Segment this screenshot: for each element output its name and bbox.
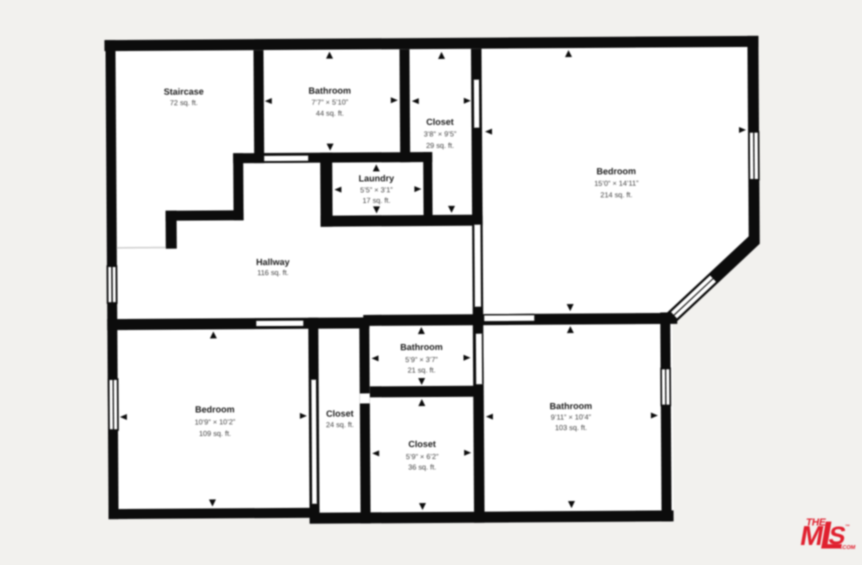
svg-text:Hallway: Hallway — [256, 257, 290, 267]
svg-text:10’9” × 10’2”: 10’9” × 10’2” — [195, 417, 236, 426]
svg-text:15’0” × 14’11”: 15’0” × 14’11” — [594, 179, 639, 188]
svg-text:103 sq. ft.: 103 sq. ft. — [555, 423, 587, 432]
svg-text:21 sq. ft.: 21 sq. ft. — [408, 365, 436, 374]
svg-text:109 sq. ft.: 109 sq. ft. — [199, 429, 231, 438]
svg-text:Laundry: Laundry — [359, 173, 395, 183]
svg-text:7’7” × 5’10”: 7’7” × 5’10” — [311, 98, 348, 107]
svg-text:Closet: Closet — [408, 439, 436, 449]
svg-text:9’11” × 10’4”: 9’11” × 10’4” — [551, 412, 592, 421]
svg-text:3’8” × 9’5”: 3’8” × 9’5” — [424, 129, 457, 138]
svg-text:17 sq. ft.: 17 sq. ft. — [362, 196, 390, 205]
svg-text:214 sq. ft.: 214 sq. ft. — [600, 190, 632, 199]
svg-text:Bathroom: Bathroom — [400, 342, 443, 352]
svg-text:Bedroom: Bedroom — [195, 404, 235, 414]
svg-text:Closet: Closet — [326, 409, 354, 419]
svg-text:72 sq. ft.: 72 sq. ft. — [170, 98, 198, 107]
svg-text:Closet: Closet — [426, 117, 454, 127]
svg-text:5’9” × 3’7”: 5’9” × 3’7” — [405, 355, 438, 364]
svg-text:44 sq. ft.: 44 sq. ft. — [316, 109, 344, 118]
svg-text:™: ™ — [844, 524, 850, 530]
svg-text:24 sq. ft.: 24 sq. ft. — [326, 420, 354, 429]
svg-text:116 sq. ft.: 116 sq. ft. — [257, 268, 289, 277]
svg-text:.COM: .COM — [840, 545, 856, 551]
svg-text:Bathroom: Bathroom — [308, 86, 351, 96]
svg-text:5’9” × 6’2”: 5’9” × 6’2” — [406, 452, 439, 461]
svg-text:Bedroom: Bedroom — [596, 166, 636, 176]
svg-text:29 sq. ft.: 29 sq. ft. — [426, 141, 454, 150]
svg-text:5’5” × 3’1”: 5’5” × 3’1” — [360, 185, 393, 194]
svg-text:Staircase: Staircase — [164, 86, 204, 96]
svg-text:Bathroom: Bathroom — [550, 401, 593, 411]
svg-text:36 sq. ft.: 36 sq. ft. — [408, 462, 436, 471]
